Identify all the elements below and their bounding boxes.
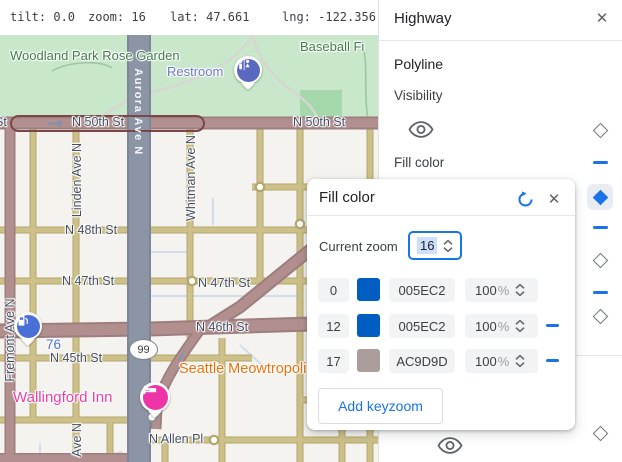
restroom-label: Restroom	[167, 64, 223, 79]
current-zoom-label: Current zoom	[319, 239, 398, 254]
hex-value-chip[interactable]: 005EC2	[389, 314, 455, 338]
keyzoom-row: 12 005EC2 100%	[307, 314, 575, 338]
keyzoom-level-chip[interactable]: 17	[318, 349, 349, 373]
dialog-close-icon[interactable]: ✕	[544, 189, 564, 209]
lodging-pin[interactable]	[140, 382, 170, 412]
park-label: Woodland Park Rose Garden	[10, 48, 84, 64]
current-zoom-value[interactable]: 16	[417, 237, 437, 254]
keyzoom-dash-icon[interactable]	[587, 291, 613, 294]
street-label-nallen: N Allen Pl	[149, 432, 203, 446]
ballfield-label: Baseball Fi	[300, 39, 364, 54]
opacity-value: 100	[475, 283, 497, 298]
percent-sign: %	[498, 283, 510, 298]
keyzoom-row: 17 AC9D9D 100%	[307, 349, 575, 373]
keyzoom-diamond-icon[interactable]	[587, 125, 613, 136]
restroom-pin[interactable]	[234, 56, 262, 84]
reset-icon[interactable]	[515, 189, 535, 209]
current-zoom-stepper[interactable]: 16	[408, 231, 462, 260]
percent-sign: %	[498, 354, 510, 369]
stepper-chevrons-icon[interactable]	[515, 355, 525, 367]
gas-station-label: 76	[46, 337, 61, 352]
stepper-chevrons-icon[interactable]	[443, 240, 453, 252]
opacity-value: 100	[475, 354, 497, 369]
street-label-n50th-e: N 50th St	[293, 115, 345, 129]
street-label-n47th-e: N 47th St	[198, 276, 250, 290]
status-lat: lat: 47.661	[170, 10, 249, 24]
remove-keyzoom-icon[interactable]	[546, 359, 559, 362]
map-style-editor: tilt: 0.0 zoom: 16 lat: 47.661 lng: -122…	[0, 0, 622, 462]
dialog-divider	[307, 215, 575, 216]
section-label-polyline: Polyline	[394, 56, 443, 72]
close-icon[interactable]: ✕	[592, 8, 612, 28]
street-label-linden: Linden Ave N	[70, 125, 84, 235]
street-label-ave-n: Ave N	[70, 410, 84, 462]
route-99-shield: 99	[129, 339, 158, 360]
status-lng: lng: -122.356	[282, 10, 376, 24]
bed-icon	[143, 385, 168, 410]
street-label-n47th-w: N 47th St	[62, 274, 114, 288]
property-label-fill-color: Fill color	[394, 155, 444, 170]
add-keyzoom-button[interactable]: Add keyzoom	[318, 388, 443, 424]
status-zoom: zoom: 16	[88, 10, 146, 24]
poi-label-wallingford-inn: Wallingford Inn	[13, 389, 113, 406]
map-status-bar: tilt: 0.0 zoom: 16 lat: 47.661 lng: -122…	[0, 0, 378, 36]
remove-keyzoom-icon[interactable]	[546, 324, 559, 327]
street-label-n45th: N 45th St	[50, 351, 102, 365]
hex-value-chip[interactable]: 005EC2	[389, 278, 455, 302]
opacity-value: 100	[475, 319, 497, 334]
keyzoom-dash-icon[interactable]	[587, 226, 613, 229]
status-tilt: tilt: 0.0	[10, 10, 75, 24]
keyzoom-diamond-selected-icon[interactable]	[587, 184, 613, 210]
keyzoom-dash-icon[interactable]	[587, 161, 613, 164]
poi-label-meowtropolis: Seattle Meowtropoli	[179, 361, 306, 377]
opacity-chip[interactable]: 100%	[465, 278, 538, 302]
keyzoom-level-chip[interactable]: 12	[318, 314, 349, 338]
intersection-nodes	[188, 183, 304, 444]
color-swatch[interactable]	[357, 314, 380, 337]
restroom-icon	[237, 59, 260, 82]
opacity-chip[interactable]: 100%	[465, 314, 538, 338]
keyzoom-diamond-icon[interactable]	[587, 255, 613, 266]
stepper-chevrons-icon[interactable]	[515, 320, 525, 332]
keyzoom-diamond-icon[interactable]	[587, 311, 613, 322]
opacity-chip[interactable]: 100%	[465, 349, 538, 373]
stepper-chevrons-icon[interactable]	[515, 284, 525, 296]
fuel-pump-icon	[17, 315, 40, 338]
keyzoom-row: 0 005EC2 100%	[307, 278, 575, 302]
property-label-visibility: Visibility	[394, 88, 443, 103]
street-label-aurora: Aurora Ave N	[132, 42, 144, 182]
visibility-eye-icon[interactable]	[408, 120, 434, 144]
color-swatch[interactable]	[357, 349, 380, 372]
street-label-fremont: Fremont Ave N	[3, 285, 17, 395]
dialog-title: Fill color	[319, 189, 375, 206]
street-label-n46th: N 46th St	[196, 320, 248, 334]
hex-value-chip[interactable]: AC9D9D	[389, 349, 455, 373]
street-label-partial: St	[0, 115, 7, 129]
keyzoom-level-chip[interactable]: 0	[318, 278, 349, 302]
street-label-whitman: Whitman Ave N	[184, 123, 198, 233]
keyzoom-diamond-icon[interactable]	[587, 428, 613, 439]
street-label-n48th: N 48th St	[65, 223, 117, 237]
fill-color-dialog: Fill color ✕ Current zoom 16 0 005EC2 10…	[307, 179, 575, 430]
color-swatch[interactable]	[357, 278, 380, 301]
panel-divider	[379, 40, 622, 41]
visibility-eye-icon[interactable]	[437, 436, 463, 460]
percent-sign: %	[498, 319, 510, 334]
gas-station-pin[interactable]	[14, 312, 42, 340]
panel-title: Highway	[394, 10, 452, 27]
